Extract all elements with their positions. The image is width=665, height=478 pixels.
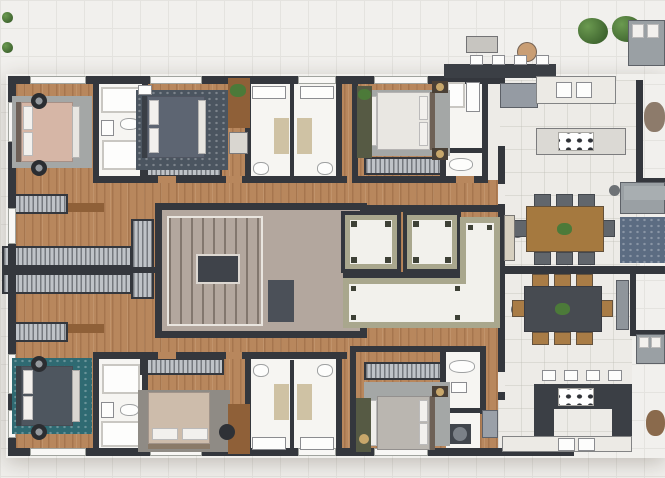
bar-stool-4 [536, 55, 549, 65]
pillow-bottom-center-1 [152, 428, 178, 440]
cabinet-plant-top-right [358, 89, 371, 100]
wall-bath-top-left-w [93, 82, 99, 182]
sideboard-upper-living [504, 215, 515, 261]
pillow-bottom-left-2 [23, 396, 33, 420]
window-left-2 [8, 208, 16, 244]
headboard-bedroom-bottom-right [430, 396, 435, 450]
elevator-2-ornament-se [445, 257, 451, 263]
kitchen-sink-1 [558, 438, 575, 451]
sink-bottom-left-bath [101, 402, 114, 418]
tub-top-left-bath [102, 140, 140, 170]
lamp-gold-top-right-2 [436, 150, 444, 158]
showermat-top-center-bath-e [297, 118, 312, 154]
dining2-chair-s1 [532, 332, 549, 345]
lobby-ornament-6 [487, 225, 492, 230]
lamp-top-left-1 [31, 93, 47, 109]
toilet-top-center-bath-w [253, 162, 269, 175]
island-sink-2 [576, 82, 592, 98]
island-sink-1 [556, 82, 572, 98]
dining1-chair-s3 [578, 252, 595, 265]
window-top-4 [374, 76, 428, 84]
elevator-1-ornament-se [385, 257, 391, 263]
showermat-bottom-center-bath-w [274, 384, 289, 420]
daybed-lower-pillow-1 [639, 337, 649, 348]
dining2-chair-s3 [576, 332, 593, 345]
closet-bottom-left [8, 322, 68, 342]
kitchen-stool-1 [542, 370, 556, 381]
desk-chair-bottom-center [219, 424, 235, 440]
pillow-top-right-1 [419, 96, 428, 120]
wardrobe-bottom-center-bedroom [140, 358, 224, 375]
bar-stool-1 [470, 55, 483, 65]
toilet-bottom-right-bath [449, 360, 475, 373]
pillow-top-left-2 [23, 132, 33, 156]
lobby-ornament-3 [351, 315, 356, 320]
elevator-2-ornament-nw [413, 221, 419, 227]
closet-mid-lower [2, 273, 132, 294]
stove-lower-kitchen [558, 388, 594, 406]
wall-bath-top-center-divider [290, 84, 294, 176]
pillow-bottom-right-2 [419, 423, 428, 445]
elevator-1-ornament-sw [351, 257, 357, 263]
lamp-gold-top-right-1 [436, 83, 444, 91]
kitchen-stool-3 [586, 370, 600, 381]
wall-bath-bottom-right-e [480, 346, 486, 414]
lobby-floor-join [460, 284, 470, 322]
daybed-pillow-1 [632, 24, 644, 38]
fridge-upper-kitchen [500, 83, 538, 108]
vanity-top-center-bath-e [300, 86, 334, 99]
elevator-2-ornament-sw [413, 257, 419, 263]
floor-plan-canvas [0, 0, 665, 478]
dining1-centerpiece-plant [557, 223, 572, 235]
daybed-pillow-2 [647, 24, 659, 38]
toilet-top-center-bath-e [317, 162, 333, 175]
tub-bottom-left-bath [102, 364, 140, 394]
lobby-corridor-floor [349, 284, 463, 322]
lobby-vertical-floor [466, 223, 494, 322]
daybed-lower-pillow-2 [651, 337, 661, 348]
bench-bottom-right [370, 400, 377, 446]
lamp-top-left-2 [31, 160, 47, 176]
dining2-chair-s2 [554, 332, 571, 345]
pillow-bottom-center-2 [182, 428, 208, 440]
wall-bath-bottom-center-divider [290, 360, 294, 450]
kitchen-stool-4 [608, 370, 622, 381]
desk-plant-top-center [230, 84, 246, 97]
wall-stair-left [155, 203, 162, 338]
cabinet-lower-living [616, 280, 629, 330]
side-table-upper-living [609, 185, 620, 196]
wall-mid-closet-divider [2, 267, 155, 273]
wall-bath-bottom-center-e [336, 352, 342, 456]
terrace-bush-1 [578, 18, 608, 44]
dining2-centerpiece-plant [555, 303, 570, 315]
cabinet-gold-bowl-bottom-right [359, 434, 369, 444]
stair-duct [268, 280, 294, 322]
terrace-plant-2 [2, 42, 13, 53]
door-hall-top-2 [226, 176, 242, 183]
vanity-bottom-center-bath-e [300, 437, 334, 450]
closet-mid-vertical [131, 219, 154, 299]
stove-upper-kitchen [558, 132, 594, 151]
shower-bottom-left-bath [101, 421, 141, 447]
sofa-cushions [624, 186, 665, 200]
wall-bath-bottom-left-w [93, 352, 99, 456]
stool-top-center [229, 132, 248, 154]
rug-upper-living [620, 217, 665, 263]
door-hall-bottom-1 [158, 352, 176, 359]
pillow-top-center-1 [149, 100, 159, 125]
closet-mid-upper [2, 246, 132, 267]
wall-stair-top [155, 203, 367, 210]
pillow-top-center-2 [149, 128, 159, 153]
toilet-bottom-center-bath-w [253, 364, 269, 377]
lobby-ornament-2 [455, 286, 460, 291]
bench-top-left [72, 106, 80, 158]
wardrobe-bottom-right-bedroom [364, 362, 446, 380]
wall-right-lower-vertical [630, 270, 636, 332]
nightstand-top-center [138, 85, 152, 95]
showermat-bottom-center-bath-e [297, 384, 312, 420]
vanity-top-center-bath-w [252, 86, 286, 99]
dining1-chair-s2 [556, 252, 573, 265]
vanity-bottom-center-bath-w [252, 437, 286, 450]
bench-bottom-left [72, 370, 80, 422]
elevator-2-ornament-ne [445, 221, 451, 227]
headboard-bedroom-top-right [430, 92, 435, 150]
cabinet-lower-kitchen [482, 410, 498, 438]
elevator-1-ornament-nw [351, 221, 357, 227]
lamp-bottom-left-1 [31, 356, 47, 372]
washer-drum [453, 427, 467, 441]
pillow-top-right-2 [419, 122, 428, 146]
door-hall-top-1 [158, 176, 176, 183]
vanity-top-right-bath [466, 82, 480, 112]
toilet-bottom-center-bath-e [317, 364, 333, 377]
kitchen-stool-2 [564, 370, 578, 381]
toilet-bottom-left-bath [120, 404, 139, 416]
bar-stool-2 [492, 55, 505, 65]
lobby-ornament-4 [455, 315, 460, 320]
bench-top-center [198, 100, 206, 154]
wall-exterior-right-upper [636, 80, 643, 180]
lobby-ornament-5 [468, 225, 473, 230]
kitchen-sink-2 [578, 438, 595, 451]
door-hall-bottom-2 [226, 352, 242, 359]
showermat-top-center-bath-w [274, 118, 289, 154]
wall-stair-bottom [155, 331, 367, 338]
headboard-bedroom-bottom-center [148, 444, 210, 449]
elevator-1-ornament-ne [385, 221, 391, 227]
shelf-bottom-left [68, 324, 104, 333]
closet-top-left [8, 194, 68, 214]
pillow-bottom-left-1 [23, 370, 33, 394]
pillow-top-left-1 [23, 106, 33, 130]
terrace-plant-1 [2, 12, 13, 23]
lamp-gold-bottom-right [436, 388, 444, 396]
wall-bath-top-center-e [336, 76, 342, 183]
window-top-2 [150, 76, 202, 84]
wall-bath-top-right-e [482, 76, 488, 183]
wall-hall-bottom-horizontal [93, 352, 347, 359]
terrace-roundchair-lower [646, 410, 665, 436]
terrace-armchair [644, 102, 665, 132]
sink-top-left-bath [101, 120, 114, 136]
door-unit-upper-right [498, 184, 505, 204]
wall-hall-top-horizontal [93, 176, 347, 183]
window-top-1 [30, 76, 86, 84]
lamp-bottom-left-2 [31, 424, 47, 440]
sink-bottom-right-bath [451, 382, 467, 393]
dining1-chair-s1 [534, 252, 551, 265]
wall-living-units-divider [498, 266, 665, 274]
door-unit-lower-right [498, 372, 505, 392]
bar-stool-3 [514, 55, 527, 65]
terrace-coffee-table [466, 36, 498, 53]
pillow-bottom-right-1 [419, 400, 428, 422]
toilet-top-right-powder [449, 158, 473, 171]
door-hall-top-3 [456, 176, 474, 183]
shower-top-left-bath [101, 87, 141, 113]
staircase-void [196, 254, 240, 284]
window-top-3 [298, 76, 336, 84]
window-bottom-1 [30, 448, 86, 456]
shelf-top-left [68, 203, 104, 212]
lobby-ornament-1 [351, 286, 356, 291]
